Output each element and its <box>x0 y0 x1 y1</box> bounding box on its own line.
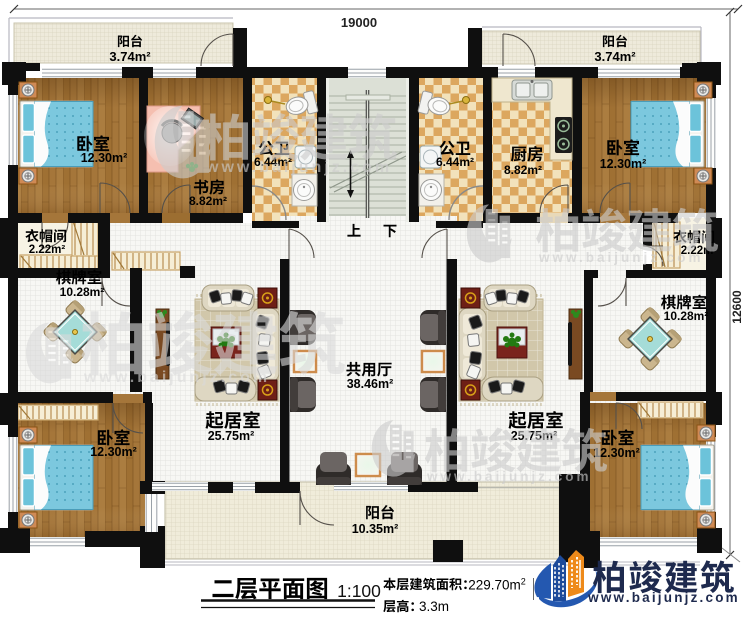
svg-text:1:100: 1:100 <box>337 581 381 601</box>
svg-text:3.74m²: 3.74m² <box>109 49 151 64</box>
svg-text:www.baijunjz.com: www.baijunjz.com <box>587 590 740 605</box>
svg-text:8.82m²: 8.82m² <box>504 163 542 177</box>
svg-text:12.30m²: 12.30m² <box>600 157 647 171</box>
svg-text:8.82m²: 8.82m² <box>189 194 227 208</box>
svg-text:229.70m2: 229.70m2 <box>468 577 526 593</box>
svg-text:12.30m²: 12.30m² <box>90 445 137 459</box>
svg-text:12600: 12600 <box>730 290 744 324</box>
svg-text:3.74m²: 3.74m² <box>594 49 636 64</box>
svg-text:www.baijunjz.com: www.baijunjz.com <box>426 469 592 484</box>
svg-text:19000: 19000 <box>341 15 377 30</box>
svg-text:38.46m²: 38.46m² <box>347 377 394 391</box>
svg-text:2.22m²: 2.22m² <box>29 244 66 256</box>
svg-text:www.baijunjz.com: www.baijunjz.com <box>538 250 704 265</box>
svg-text:10.35m²: 10.35m² <box>352 522 399 536</box>
svg-text:12.30m²: 12.30m² <box>81 151 128 165</box>
svg-text:www.baijunjz.com: www.baijunjz.com <box>205 159 392 176</box>
svg-text:25.75m²: 25.75m² <box>208 429 255 443</box>
svg-text:10.28m²: 10.28m² <box>664 309 709 323</box>
svg-text:6.44m²: 6.44m² <box>436 155 474 169</box>
svg-text:10.28m²: 10.28m² <box>60 285 105 299</box>
svg-text:www.baijunjz.com: www.baijunjz.com <box>83 369 270 386</box>
svg-text:3.3m: 3.3m <box>419 599 449 614</box>
